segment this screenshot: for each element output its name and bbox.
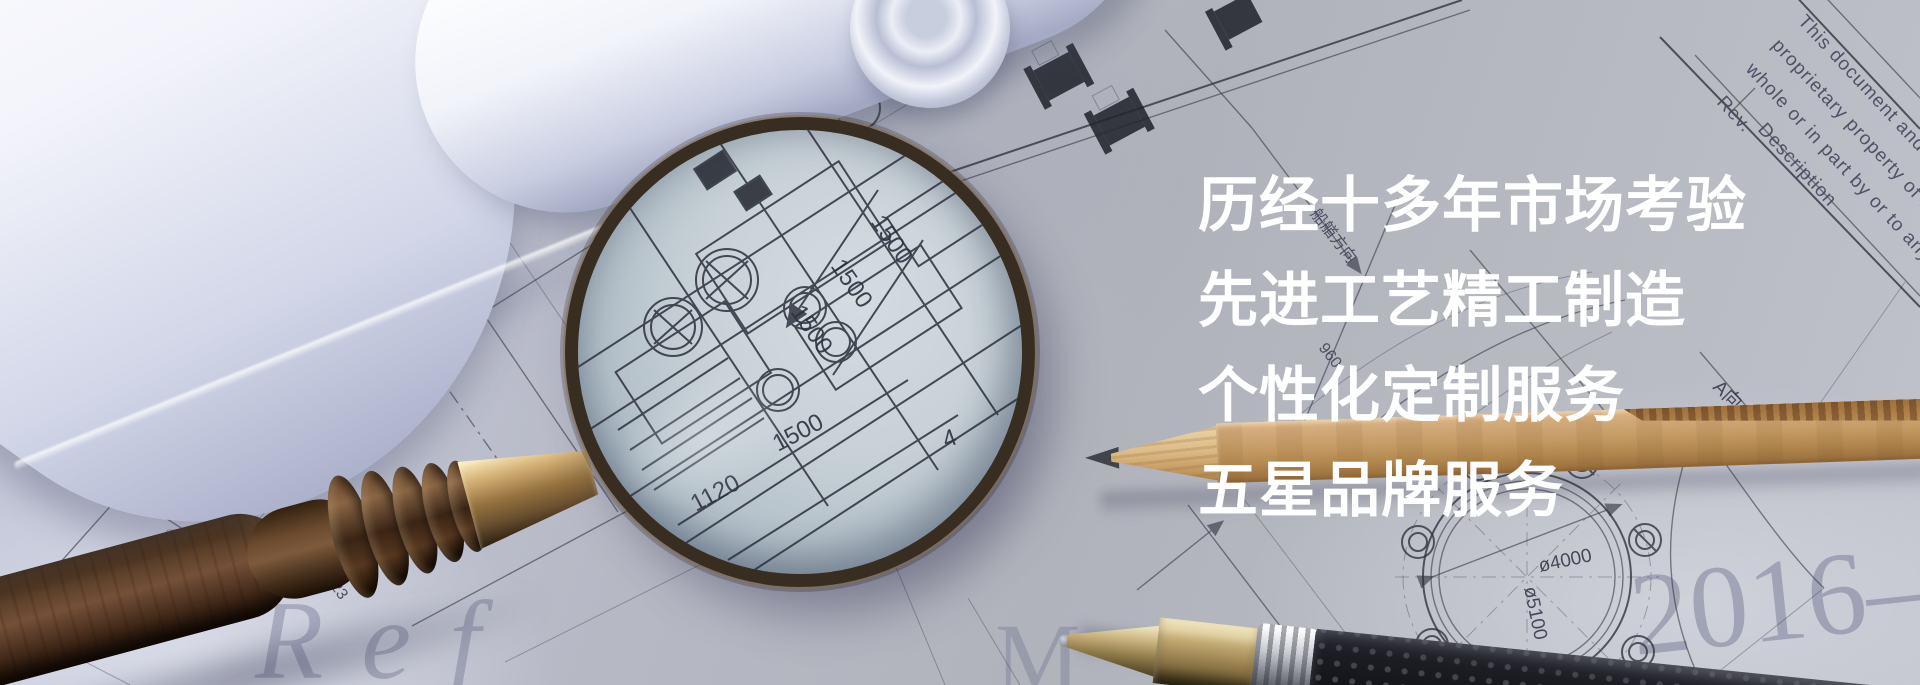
magnifying-glass-lens: 1500 1500 1500 1500 1120 4 <box>565 117 1035 587</box>
hero-banner: Ref M 2016— 600 23 <box>0 0 1920 685</box>
headline-line-2: 先进工艺精工制造 <box>1198 271 1747 331</box>
pen-brass-section <box>1153 617 1260 685</box>
headline-line-4: 五星品牌服务 <box>1198 461 1747 521</box>
pen-chrome-band <box>1249 622 1319 685</box>
lens-magnified-drawing: 1500 1500 1500 1500 1120 4 <box>578 130 1022 574</box>
svg-text:1500: 1500 <box>825 254 878 313</box>
pen-brass-cone <box>1064 615 1161 677</box>
diameter-label: ø5100 <box>1519 585 1551 642</box>
hero-headline: 历经十多年市场考验 先进工艺精工制造 个性化定制服务 五星品牌服务 <box>1198 176 1747 556</box>
headline-line-1: 历经十多年市场考验 <box>1198 176 1747 236</box>
headline-line-3: 个性化定制服务 <box>1198 366 1747 426</box>
